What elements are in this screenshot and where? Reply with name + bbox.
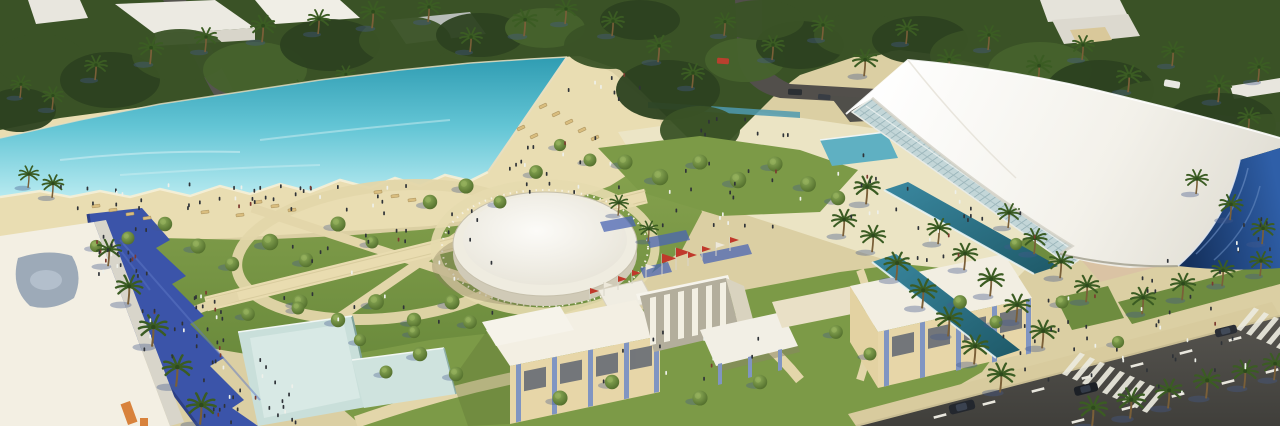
pilaster	[624, 342, 629, 399]
person	[439, 261, 441, 265]
person	[967, 218, 969, 222]
person	[729, 191, 731, 195]
person	[509, 167, 511, 171]
pilaster	[516, 364, 521, 423]
person	[454, 277, 456, 281]
person	[578, 185, 580, 189]
person	[676, 209, 678, 213]
person	[929, 238, 931, 242]
person	[1094, 294, 1096, 298]
person	[150, 318, 152, 322]
person	[659, 344, 661, 348]
person	[102, 270, 104, 274]
person	[404, 239, 406, 243]
person	[1068, 296, 1070, 300]
person	[1214, 322, 1216, 326]
person	[60, 185, 62, 189]
person	[1190, 295, 1192, 299]
person	[214, 300, 216, 304]
person	[327, 246, 329, 250]
person	[744, 224, 746, 228]
person	[217, 340, 219, 344]
person	[1243, 223, 1245, 227]
person	[970, 207, 972, 211]
person	[1116, 348, 1118, 352]
person	[1095, 344, 1097, 348]
person	[269, 406, 271, 410]
person	[669, 190, 671, 194]
person	[274, 380, 276, 384]
post	[748, 356, 752, 378]
column	[678, 291, 684, 340]
person	[662, 331, 664, 335]
person	[92, 201, 94, 205]
person	[520, 160, 522, 164]
person	[653, 338, 655, 342]
person	[146, 272, 148, 276]
person	[515, 163, 517, 167]
person	[382, 200, 384, 204]
car	[717, 58, 729, 65]
person	[622, 349, 624, 353]
person	[719, 216, 721, 220]
pilaster	[920, 322, 925, 379]
person	[292, 245, 294, 249]
person	[219, 408, 221, 412]
person	[259, 186, 261, 190]
person	[1172, 354, 1174, 358]
person	[203, 378, 205, 382]
person	[1147, 289, 1149, 293]
orange-awning	[140, 418, 148, 426]
person	[132, 257, 134, 261]
person	[172, 354, 174, 358]
person	[183, 328, 185, 332]
person	[259, 358, 261, 362]
person	[199, 200, 201, 204]
person	[895, 207, 897, 211]
person	[1156, 323, 1158, 327]
person	[579, 160, 581, 164]
person	[288, 393, 290, 397]
pilaster	[884, 330, 889, 387]
person	[99, 251, 101, 255]
person	[1024, 367, 1026, 371]
person	[618, 97, 620, 101]
post	[778, 349, 782, 371]
person	[144, 347, 146, 351]
person	[310, 186, 312, 190]
person	[311, 259, 313, 263]
person	[1003, 335, 1005, 339]
person	[196, 344, 198, 348]
person	[273, 197, 275, 201]
person	[533, 145, 535, 149]
person	[757, 132, 759, 136]
person	[471, 209, 473, 213]
person	[140, 198, 142, 202]
person	[214, 308, 216, 312]
person	[1219, 270, 1221, 274]
person	[700, 129, 702, 133]
person	[1269, 247, 1271, 251]
person	[492, 311, 494, 315]
person	[837, 172, 839, 176]
person	[207, 327, 209, 331]
person	[284, 410, 286, 414]
person	[196, 334, 198, 338]
person	[277, 413, 279, 417]
person	[772, 225, 774, 229]
person	[549, 182, 551, 186]
person	[205, 291, 207, 295]
person	[751, 355, 753, 359]
person	[213, 407, 215, 411]
person	[117, 252, 119, 256]
person	[1221, 341, 1223, 345]
person	[136, 269, 138, 273]
person	[233, 186, 235, 190]
person	[291, 384, 293, 388]
column	[692, 288, 698, 337]
person	[377, 194, 379, 198]
person	[346, 208, 348, 212]
person	[727, 221, 729, 225]
person	[241, 185, 243, 189]
person	[255, 396, 257, 400]
person	[623, 73, 625, 77]
person	[312, 292, 314, 296]
person	[959, 200, 961, 204]
person	[526, 182, 528, 186]
person	[149, 335, 151, 339]
person	[469, 238, 471, 242]
pilaster	[552, 357, 557, 415]
person	[618, 185, 620, 189]
person	[215, 359, 217, 363]
person	[614, 91, 616, 95]
person	[405, 229, 407, 233]
person	[265, 196, 267, 200]
roof-feature-highlight	[30, 270, 62, 290]
person	[1086, 336, 1088, 340]
person	[237, 407, 239, 411]
person	[562, 152, 564, 156]
person	[1181, 391, 1183, 395]
person	[217, 413, 219, 417]
person	[387, 186, 389, 190]
person	[212, 360, 214, 364]
person	[708, 120, 710, 124]
person	[230, 420, 232, 424]
person	[716, 117, 718, 121]
person	[610, 162, 612, 166]
person	[216, 315, 218, 319]
person	[239, 388, 241, 392]
person	[303, 189, 305, 193]
person	[262, 374, 264, 378]
person	[1158, 385, 1160, 389]
person	[265, 365, 267, 369]
person	[703, 377, 705, 381]
post	[718, 363, 722, 385]
person	[398, 238, 400, 242]
person	[963, 214, 965, 218]
person	[1085, 325, 1087, 329]
person	[970, 214, 972, 218]
person	[128, 251, 130, 255]
person	[235, 196, 237, 200]
person	[396, 229, 398, 233]
person	[917, 256, 919, 260]
person	[219, 197, 221, 201]
person	[116, 191, 118, 195]
person	[704, 133, 706, 137]
person	[204, 414, 206, 418]
person	[319, 195, 321, 199]
person	[1258, 237, 1260, 241]
person	[105, 259, 107, 263]
person	[1167, 259, 1169, 263]
person	[748, 169, 750, 173]
person	[187, 206, 189, 210]
person	[220, 353, 222, 357]
person	[1024, 324, 1026, 328]
person	[280, 184, 282, 188]
person	[337, 185, 339, 189]
person	[120, 263, 122, 267]
person	[195, 295, 197, 299]
person	[1050, 327, 1052, 331]
person	[524, 163, 526, 167]
person	[254, 200, 256, 204]
person	[877, 210, 879, 214]
person	[1058, 328, 1060, 332]
person	[291, 207, 293, 211]
person	[232, 395, 234, 399]
person	[1260, 223, 1262, 227]
person	[1187, 338, 1189, 342]
person	[300, 186, 302, 190]
person	[611, 76, 613, 80]
person	[1210, 307, 1212, 311]
person	[1142, 276, 1144, 280]
person	[943, 254, 945, 258]
person	[1212, 282, 1214, 286]
person	[174, 327, 176, 331]
person	[603, 379, 605, 383]
person	[137, 274, 139, 278]
person	[712, 357, 714, 361]
person	[222, 317, 224, 321]
person	[103, 235, 105, 239]
pavilion-roof-disc	[463, 195, 627, 285]
person	[685, 169, 687, 173]
person	[926, 258, 928, 262]
person	[1159, 326, 1161, 330]
person	[527, 146, 529, 150]
person	[223, 338, 225, 342]
person	[1048, 299, 1050, 303]
person	[733, 196, 735, 200]
person	[918, 226, 920, 230]
person	[491, 261, 493, 265]
person	[354, 305, 356, 309]
rendering-canvas	[0, 0, 1280, 426]
person	[383, 211, 385, 215]
person	[117, 264, 119, 268]
person	[448, 230, 450, 234]
person	[734, 182, 736, 186]
person	[142, 309, 144, 313]
person	[800, 197, 802, 201]
person	[77, 206, 79, 210]
person	[639, 86, 641, 90]
person	[135, 227, 137, 231]
person	[869, 211, 871, 215]
person	[1151, 279, 1153, 283]
person	[1141, 307, 1143, 311]
person	[1232, 337, 1234, 341]
person	[869, 180, 871, 184]
person	[948, 233, 950, 237]
pilaster	[588, 349, 593, 407]
person	[351, 271, 353, 275]
person	[111, 243, 113, 247]
person	[568, 88, 570, 92]
person	[1146, 368, 1148, 372]
column	[664, 294, 670, 343]
column	[720, 282, 726, 330]
person	[189, 182, 191, 186]
person	[595, 136, 597, 140]
person	[87, 187, 89, 191]
person	[955, 190, 957, 194]
person	[138, 206, 140, 210]
person	[1122, 358, 1124, 362]
person	[1155, 289, 1157, 293]
person	[863, 153, 865, 157]
person	[722, 212, 724, 216]
person	[1048, 378, 1050, 382]
person	[223, 366, 225, 370]
person	[1067, 320, 1069, 324]
person	[130, 258, 132, 262]
person	[219, 346, 221, 350]
person	[476, 218, 478, 222]
person	[1237, 247, 1239, 251]
person	[875, 177, 877, 181]
person	[365, 234, 367, 238]
person	[665, 371, 667, 375]
column	[706, 285, 712, 333]
person	[295, 420, 297, 424]
person	[711, 364, 713, 368]
person	[775, 170, 777, 174]
person	[1073, 347, 1075, 351]
person	[1236, 241, 1238, 245]
person	[115, 203, 117, 207]
person	[981, 217, 983, 221]
person	[703, 337, 705, 341]
person	[594, 81, 596, 85]
person	[384, 294, 386, 298]
person	[291, 418, 293, 422]
person	[1214, 368, 1216, 372]
person	[708, 162, 710, 166]
person	[283, 296, 285, 300]
person	[600, 85, 602, 89]
person	[958, 253, 960, 257]
person	[662, 223, 664, 227]
person	[403, 305, 405, 309]
person	[252, 197, 254, 201]
person	[168, 183, 170, 187]
person	[122, 192, 124, 196]
aerial-park-rendering	[0, 0, 1280, 426]
person	[744, 118, 746, 122]
person	[111, 252, 113, 256]
person	[772, 178, 774, 182]
person	[690, 187, 692, 191]
person	[320, 250, 322, 254]
person	[107, 248, 109, 252]
person	[861, 183, 863, 187]
person	[405, 184, 407, 188]
person	[229, 395, 231, 399]
person	[1169, 310, 1171, 314]
person	[368, 240, 370, 244]
person	[1175, 358, 1177, 362]
tree-canopy-blob	[716, 0, 804, 40]
person	[438, 320, 440, 324]
person	[195, 305, 197, 309]
person	[1158, 319, 1160, 323]
person	[787, 133, 789, 137]
person	[254, 189, 256, 193]
person	[96, 240, 98, 244]
person	[202, 304, 204, 308]
person	[238, 204, 240, 208]
person	[866, 175, 868, 179]
person	[1020, 211, 1022, 215]
person	[98, 272, 100, 276]
person	[546, 172, 548, 176]
person	[337, 317, 339, 321]
person	[573, 190, 575, 194]
person	[907, 187, 909, 191]
person	[1091, 373, 1093, 377]
car	[788, 89, 802, 95]
person	[1017, 206, 1019, 210]
person	[850, 215, 852, 219]
person	[372, 204, 374, 208]
person	[283, 405, 285, 409]
person	[529, 190, 531, 194]
person	[220, 310, 222, 314]
person	[282, 399, 284, 403]
person	[1034, 339, 1036, 343]
person	[451, 212, 453, 216]
person	[1020, 351, 1022, 355]
person	[1266, 221, 1268, 225]
person	[1195, 358, 1197, 362]
person	[295, 192, 297, 196]
person	[713, 223, 715, 227]
person	[564, 141, 566, 145]
person	[1034, 235, 1036, 239]
person	[757, 337, 759, 341]
